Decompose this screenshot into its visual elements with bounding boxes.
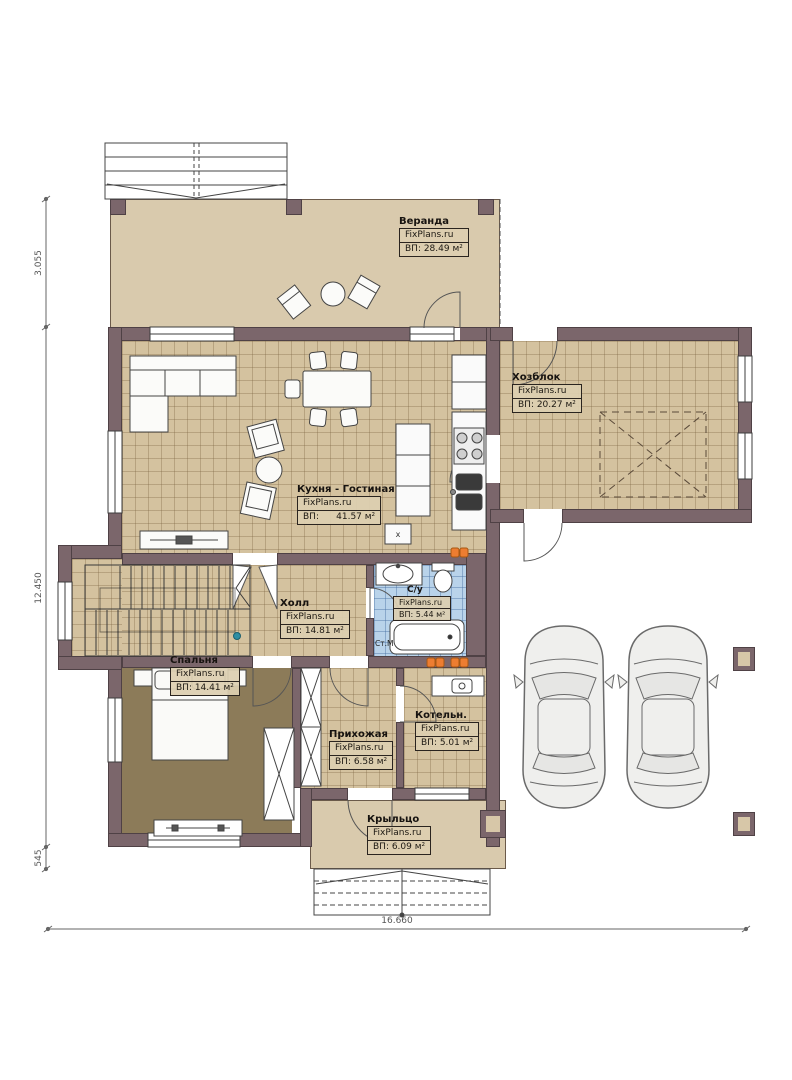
room-area: ВП: 41.57 м² bbox=[298, 511, 380, 524]
room-info-box: FixPlans.ru ВП: 14.81 м² bbox=[280, 610, 350, 639]
plan-linework: 3.055 12.450 545 16.660 bbox=[0, 0, 792, 1080]
room-info-box: FixPlans.ru ВП: 5.01 м² bbox=[415, 722, 479, 751]
veranda-steps bbox=[105, 143, 287, 199]
room-info-box: FixPlans.ru ВП: 6.09 м² bbox=[367, 826, 431, 855]
boiler-fixtures bbox=[432, 676, 484, 696]
dim-left-bottom: 545 bbox=[34, 849, 44, 866]
room-area: ВП: 20.27 м² bbox=[513, 399, 581, 412]
hall-closet bbox=[301, 668, 321, 786]
brand-link[interactable]: FixPlans.ru bbox=[400, 229, 468, 243]
veranda-furniture bbox=[277, 275, 380, 319]
dining-set bbox=[285, 351, 371, 427]
room-area: ВП: 6.58 м² bbox=[330, 756, 392, 769]
room-name: Спальня bbox=[170, 655, 240, 666]
sofa bbox=[130, 356, 236, 432]
room-label-prihozhaya: Прихожая FixPlans.ru ВП: 6.58 м² bbox=[329, 729, 393, 770]
brand-link[interactable]: FixPlans.ru bbox=[513, 385, 581, 399]
car-left bbox=[514, 626, 614, 808]
room-area: ВП: 6.09 м² bbox=[368, 841, 430, 854]
room-area: ВП: 28.49 м² bbox=[400, 243, 468, 256]
car-right bbox=[618, 626, 718, 808]
dresser bbox=[154, 820, 242, 836]
room-name: Холл bbox=[280, 598, 350, 609]
washing-machine-label: Ст.М bbox=[375, 639, 393, 648]
brand-link[interactable]: FixPlans.ru bbox=[416, 723, 478, 737]
room-name: Веранда bbox=[399, 216, 469, 227]
hozblok-dashed-area bbox=[600, 412, 706, 497]
room-name: Прихожая bbox=[329, 729, 393, 740]
room-name: Кухня - Гостиная bbox=[297, 484, 395, 495]
brand-link[interactable]: FixPlans.ru bbox=[281, 611, 349, 625]
room-label-kitchen-living: Кухня - Гостиная FixPlans.ru ВП: 41.57 м… bbox=[297, 484, 395, 525]
brand-link[interactable]: FixPlans.ru bbox=[171, 668, 239, 682]
room-label-bathroom: С/у FixPlans.ru ВП: 5.44 м² bbox=[393, 585, 451, 621]
room-name: Крыльцо bbox=[367, 814, 431, 825]
room-area: ВП: 5.01 м² bbox=[416, 737, 478, 750]
brand-link[interactable]: FixPlans.ru bbox=[298, 497, 380, 511]
room-area: ВП: 5.44 м² bbox=[394, 609, 450, 620]
armchairs bbox=[240, 419, 284, 519]
room-info-box: FixPlans.ru ВП: 41.57 м² bbox=[297, 496, 381, 525]
dim-left-mid: 12.450 bbox=[34, 572, 44, 604]
double-door-leaves bbox=[233, 565, 277, 609]
brand-link[interactable]: FixPlans.ru bbox=[368, 827, 430, 841]
room-label-hozblok: Хозблок FixPlans.ru ВП: 20.27 м² bbox=[512, 372, 582, 413]
room-area: ВП: 14.41 м² bbox=[171, 682, 239, 695]
room-name: С/у bbox=[407, 585, 451, 595]
room-info-box: FixPlans.ru ВП: 28.49 м² bbox=[399, 228, 469, 257]
room-info-box: FixPlans.ru ВП: 20.27 м² bbox=[512, 384, 582, 413]
room-label-bedroom: Спальня FixPlans.ru ВП: 14.41 м² bbox=[170, 655, 240, 696]
room-info-box: FixPlans.ru ВП: 14.41 м² bbox=[170, 667, 240, 696]
room-name: Котельн. bbox=[415, 710, 479, 721]
porch-steps bbox=[314, 869, 490, 917]
dim-bottom-width: 16.660 bbox=[381, 916, 413, 926]
room-name: Хозблок bbox=[512, 372, 582, 383]
room-area: ВП: 14.81 м² bbox=[281, 625, 349, 638]
wardrobe bbox=[264, 728, 294, 820]
brand-link[interactable]: FixPlans.ru bbox=[330, 742, 392, 756]
room-info-box: FixPlans.ru ВП: 6.58 м² bbox=[329, 741, 393, 770]
room-label-veranda: Веранда FixPlans.ru ВП: 28.49 м² bbox=[399, 216, 469, 257]
room-label-boiler: Котельн. FixPlans.ru ВП: 5.01 м² bbox=[415, 710, 479, 751]
room-label-hall: Холл FixPlans.ru ВП: 14.81 м² bbox=[280, 598, 350, 639]
duct-label: x bbox=[396, 530, 401, 539]
kitchen-fixtures bbox=[385, 355, 486, 544]
staircase bbox=[85, 565, 250, 656]
floor-plan: 3.055 12.450 545 16.660 bbox=[0, 0, 792, 1080]
tv-console bbox=[140, 531, 228, 549]
room-label-porch: Крыльцо FixPlans.ru ВП: 6.09 м² bbox=[367, 814, 431, 855]
brand-link[interactable]: FixPlans.ru bbox=[394, 597, 450, 609]
dim-left-top: 3.055 bbox=[34, 250, 44, 276]
room-info-box: FixPlans.ru ВП: 5.44 м² bbox=[393, 596, 451, 621]
